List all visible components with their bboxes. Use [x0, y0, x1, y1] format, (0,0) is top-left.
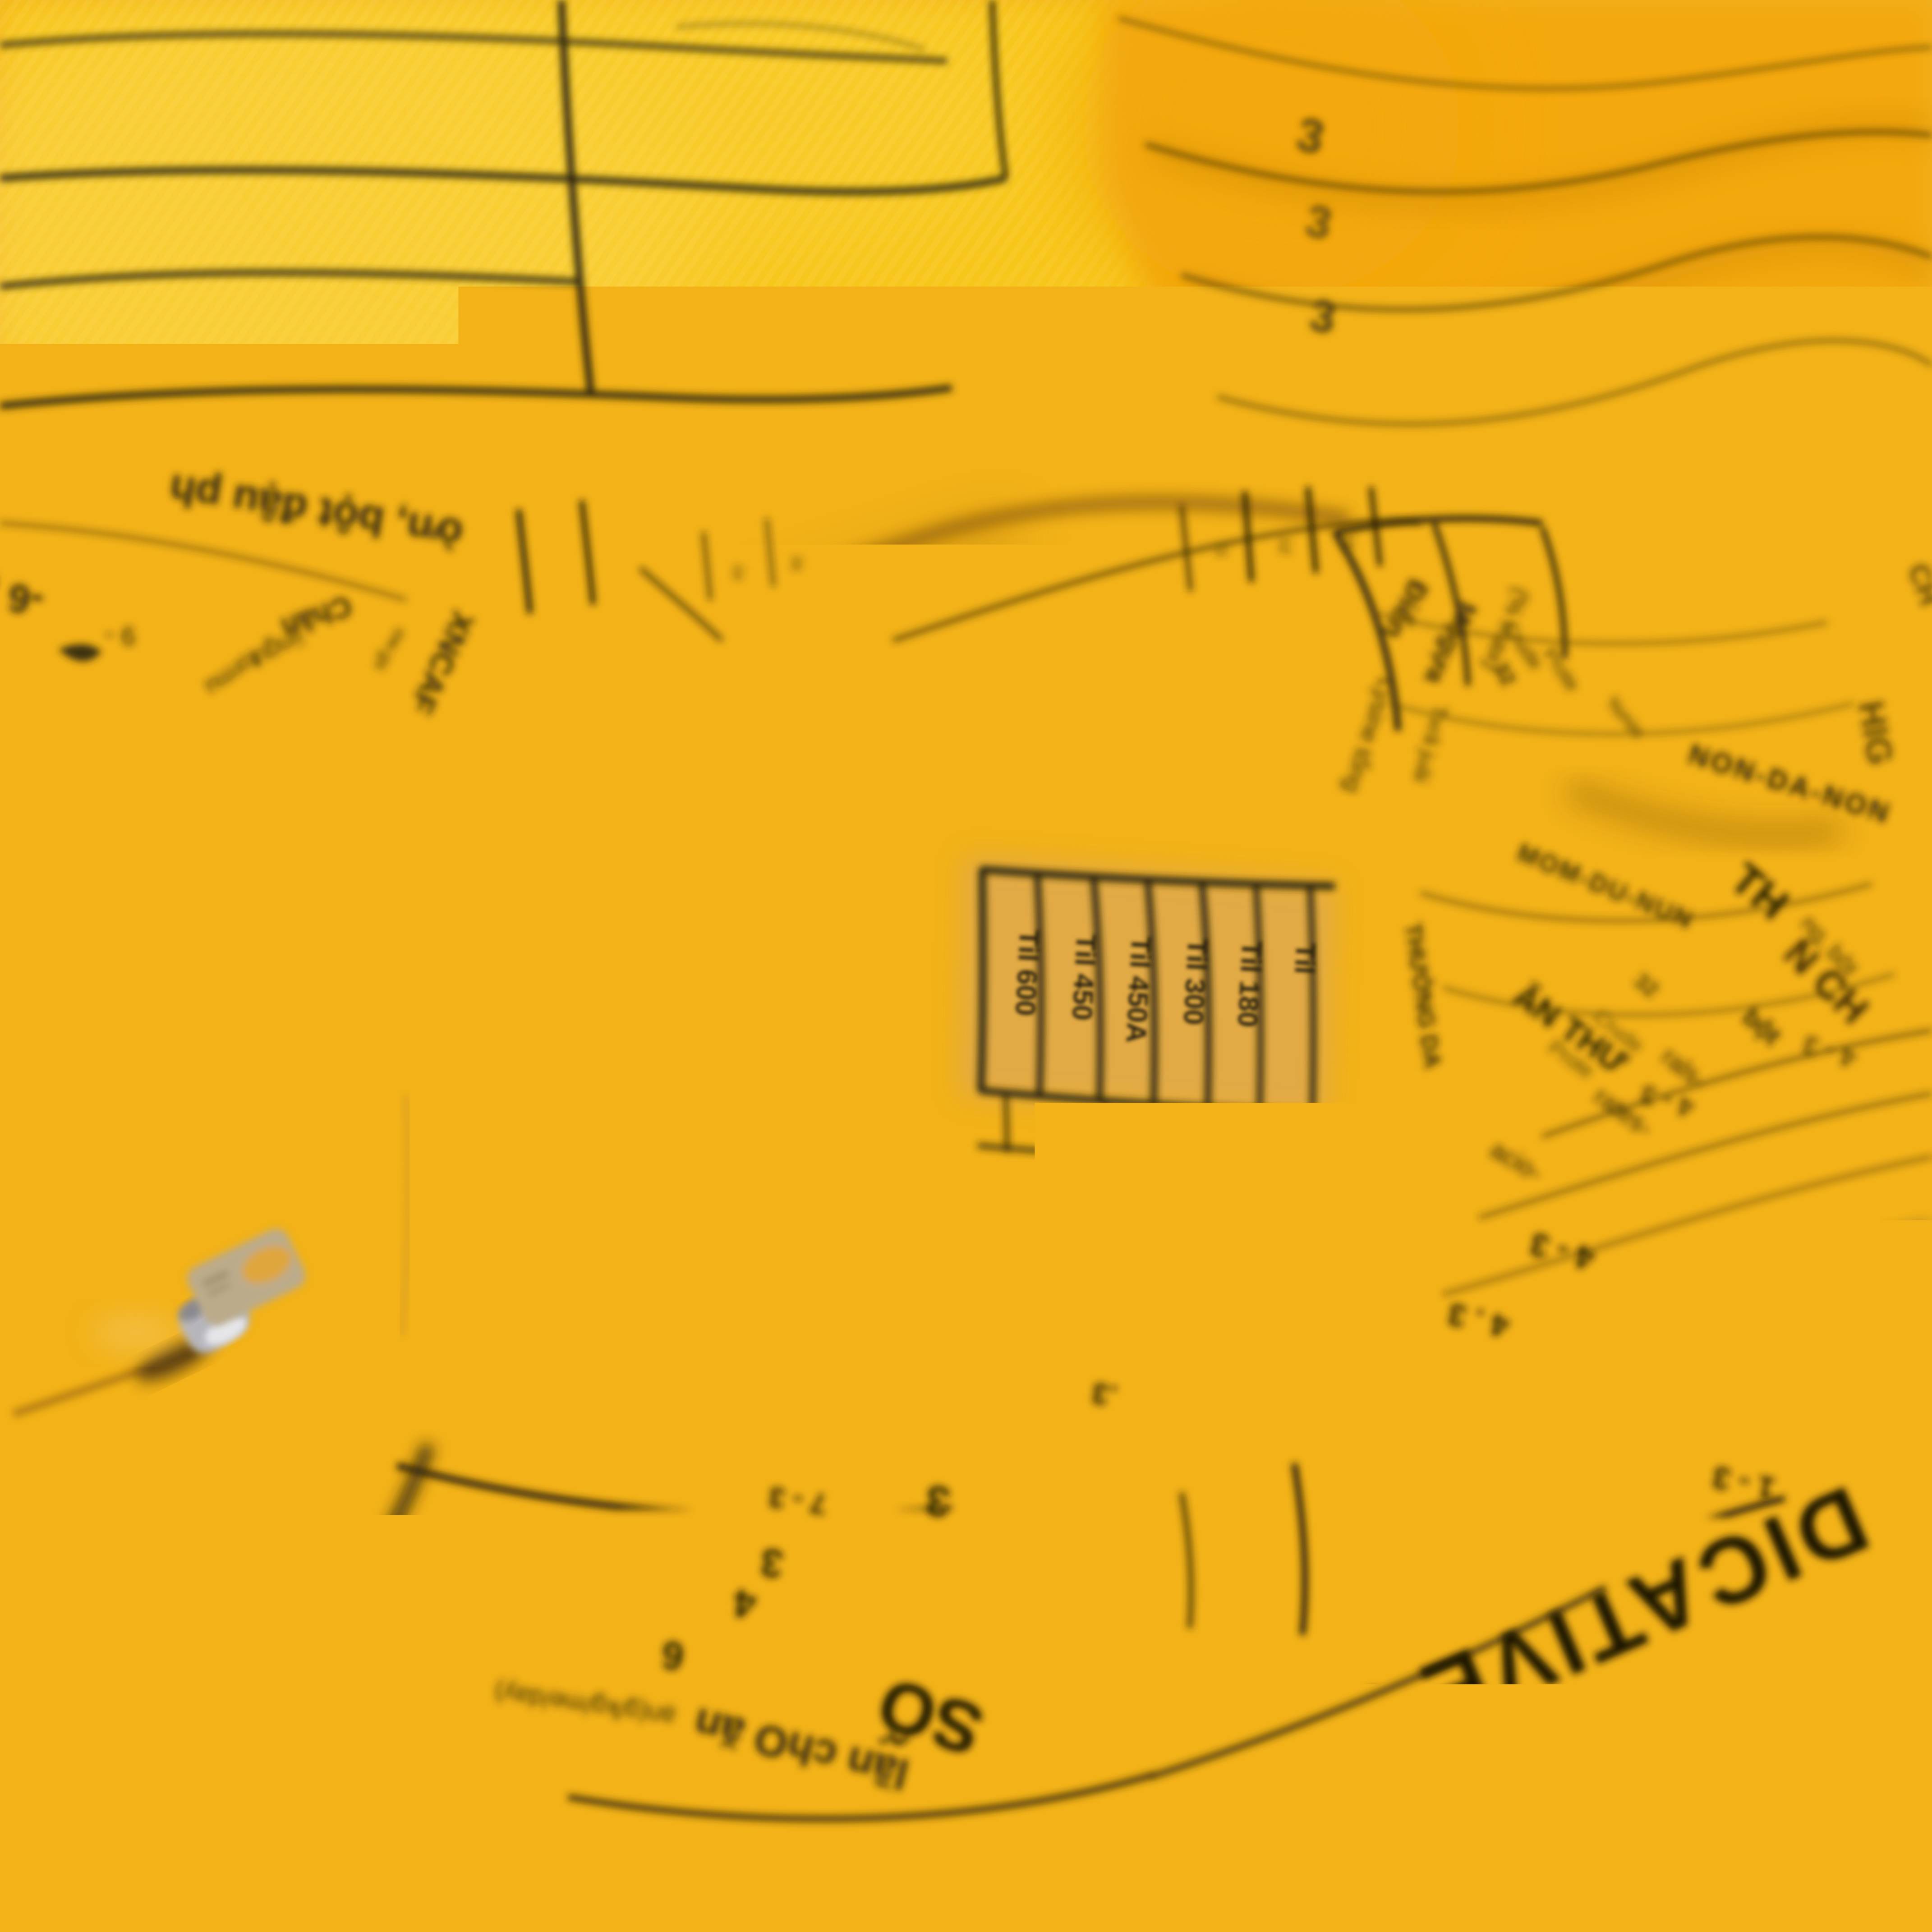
svg-text:Til: Til	[1289, 942, 1321, 975]
svg-text:Til 180: Til 180	[1232, 940, 1267, 1028]
svg-text:15: 15	[1339, 532, 1357, 550]
svg-text:Til 450A: Til 450A	[1120, 935, 1157, 1044]
svg-text:11: 11	[1213, 541, 1231, 558]
svg-text:13: 13	[729, 563, 746, 581]
svg-text:-6 ,: -6 ,	[0, 572, 46, 624]
svg-text:9 -: 9 -	[105, 621, 136, 651]
svg-text:12: 12	[1276, 536, 1294, 555]
svg-text:Til 300: Til 300	[1178, 938, 1213, 1026]
svg-text:Til 450: Til 450	[1066, 933, 1102, 1021]
svg-text:Til 600: Til 600	[1009, 929, 1045, 1017]
svg-text:15: 15	[788, 554, 805, 572]
